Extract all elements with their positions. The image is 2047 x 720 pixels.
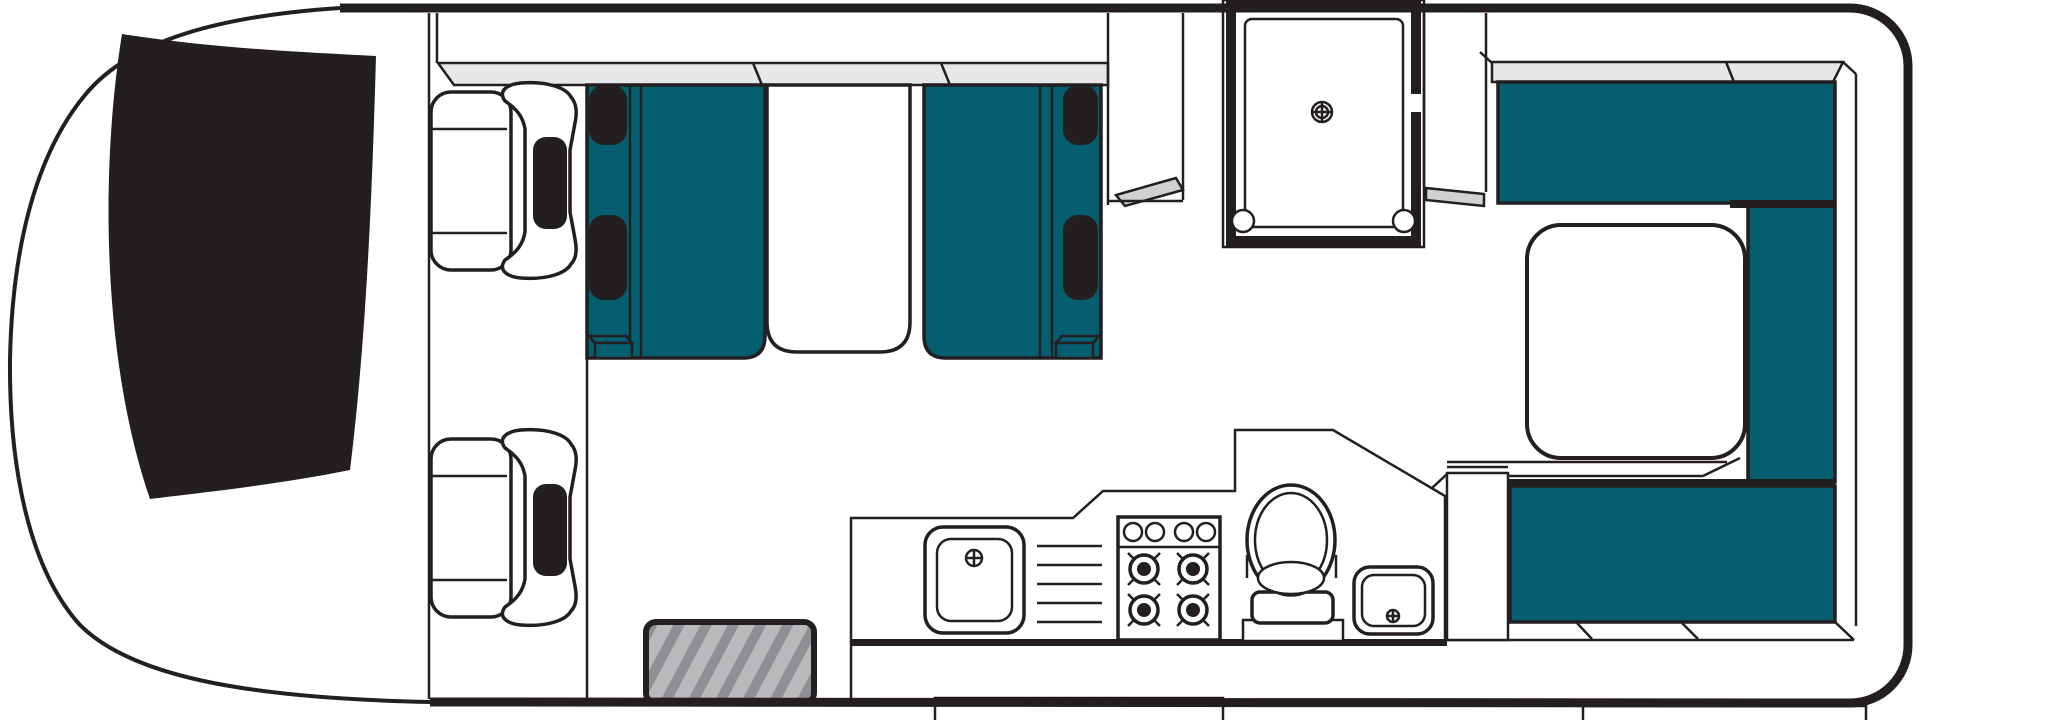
dinette xyxy=(587,85,1101,358)
shower-door-latch xyxy=(1408,94,1422,112)
stove xyxy=(1118,517,1220,640)
floorplan-svg xyxy=(0,0,2047,720)
washbasin xyxy=(1354,567,1433,634)
headrest xyxy=(1063,215,1098,300)
rear-bench-side xyxy=(1748,205,1835,482)
headrest xyxy=(589,215,627,300)
windshield xyxy=(109,34,376,499)
headrest xyxy=(1063,85,1098,145)
shower-corner xyxy=(1232,210,1254,232)
rear-table xyxy=(1527,225,1745,458)
cushion-divider xyxy=(1730,200,1835,208)
driver-seat xyxy=(431,83,576,279)
dinette-table xyxy=(767,85,910,352)
shower-corner xyxy=(1393,210,1415,232)
rear-bumper xyxy=(1583,706,1866,720)
entry-mat xyxy=(646,622,814,703)
shower-drain-icon xyxy=(1312,102,1332,122)
kitchen-sink xyxy=(925,527,1024,633)
passenger-seat xyxy=(431,430,576,626)
headrest xyxy=(589,85,627,145)
toilet xyxy=(1243,485,1343,641)
rear-bench-top xyxy=(1498,82,1835,203)
floorplan-stage xyxy=(0,0,2047,720)
rear-bench-bottom xyxy=(1510,486,1835,622)
cushion-divider xyxy=(1508,479,1835,487)
